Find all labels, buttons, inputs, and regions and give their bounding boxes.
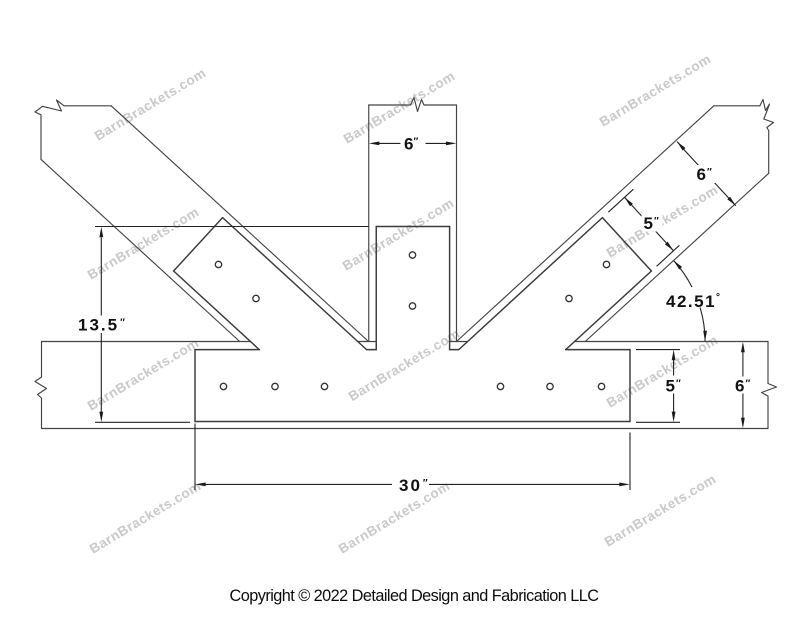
svg-text:42.51°: 42.51° bbox=[666, 292, 722, 311]
svg-text:Copyright © 2022 Detailed Desi: Copyright © 2022 Detailed Design and Fab… bbox=[230, 587, 600, 605]
